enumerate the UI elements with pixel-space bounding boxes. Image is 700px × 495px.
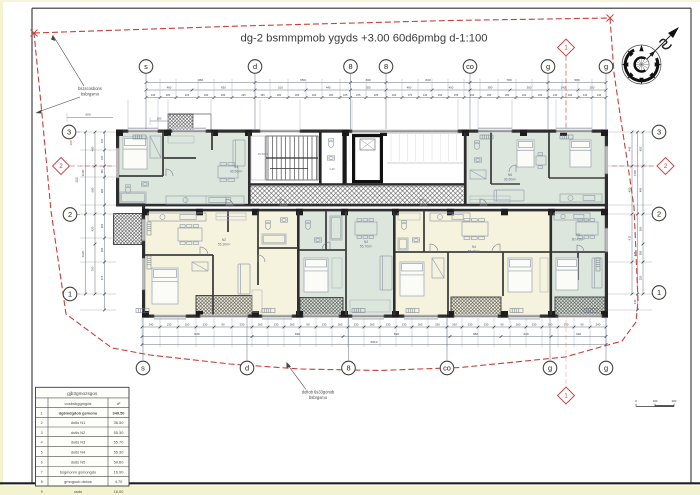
svg-text:4.30: 4.30 (329, 167, 335, 171)
svg-text:130: 130 (532, 323, 537, 327)
svg-text:230: 230 (435, 323, 440, 327)
svg-text:36.50: 36.50 (114, 420, 125, 425)
svg-text:160: 160 (538, 93, 543, 97)
svg-text:bsbrgsmo: bsbrgsmo (81, 92, 100, 97)
svg-text:59.60: 59.60 (114, 459, 125, 464)
svg-text:g: g (548, 364, 552, 373)
svg-text:140: 140 (149, 323, 154, 327)
svg-text:130: 130 (386, 323, 391, 327)
svg-text:1: 1 (68, 290, 72, 299)
svg-text:55.30m²: 55.30m² (218, 243, 231, 247)
svg-text:90: 90 (306, 323, 310, 327)
svg-text:36.50m²: 36.50m² (504, 178, 517, 182)
svg-text:1120: 1120 (81, 250, 85, 257)
svg-text:1: 1 (41, 412, 43, 416)
svg-text:160: 160 (100, 169, 104, 174)
svg-text:160: 160 (204, 93, 209, 97)
svg-text:7: 7 (41, 470, 43, 474)
svg-text:15.50m²: 15.50m² (257, 152, 268, 156)
svg-text:160: 160 (568, 93, 573, 97)
svg-text:130: 130 (633, 299, 637, 304)
svg-text:55.30: 55.30 (114, 449, 125, 454)
svg-text:950: 950 (300, 78, 305, 82)
svg-text:160: 160 (370, 323, 375, 327)
svg-text:130: 130 (203, 323, 208, 327)
svg-text:380: 380 (488, 85, 493, 89)
svg-text:140: 140 (423, 93, 428, 97)
svg-text:200: 200 (100, 223, 104, 228)
svg-text:160: 160 (290, 323, 295, 327)
svg-text:445: 445 (326, 85, 331, 89)
svg-text:130: 130 (402, 323, 407, 327)
svg-text:xsdo: xsdo (74, 489, 82, 494)
svg-text:d: d (253, 62, 257, 71)
svg-text:d: d (245, 364, 249, 373)
svg-text:8: 8 (348, 62, 352, 71)
svg-text:600: 600 (85, 113, 90, 117)
svg-text:3: 3 (41, 431, 43, 435)
svg-text:8: 8 (346, 364, 350, 373)
svg-text:780: 780 (506, 78, 511, 82)
svg-text:445: 445 (628, 146, 632, 151)
svg-text:380: 380 (473, 332, 478, 336)
svg-text:2: 2 (657, 210, 661, 219)
svg-text:480: 480 (91, 146, 95, 151)
svg-text:2810: 2810 (371, 340, 378, 344)
svg-text:140: 140 (553, 93, 558, 97)
svg-text:225: 225 (241, 93, 246, 97)
svg-text:9: 9 (41, 490, 43, 494)
svg-text:160: 160 (338, 323, 343, 327)
svg-text:g: g (604, 364, 608, 373)
svg-text:180: 180 (639, 250, 643, 255)
svg-text:510: 510 (278, 85, 283, 89)
svg-text:300: 300 (69, 140, 73, 145)
svg-text:55.70: 55.70 (114, 439, 125, 444)
svg-text:80.45m²: 80.45m² (572, 238, 585, 242)
svg-text:130: 130 (100, 155, 104, 160)
svg-text:400: 400 (628, 187, 632, 192)
svg-text:160: 160 (258, 323, 263, 327)
svg-text:g: g (546, 62, 550, 71)
svg-text:170: 170 (408, 93, 413, 97)
svg-text:gjb3gmozsgos: gjb3gmozsgos (67, 391, 98, 396)
svg-text:160: 160 (522, 93, 527, 97)
svg-text:8: 8 (384, 62, 388, 71)
svg-text:180: 180 (329, 93, 334, 97)
svg-text:300: 300 (527, 85, 532, 89)
svg-text:36.50m²: 36.50m² (230, 170, 243, 174)
svg-text:830: 830 (194, 332, 199, 336)
svg-text:bsgmonm gsmongdo: bsgmonm gsmongdo (60, 469, 96, 474)
svg-text:3: 3 (67, 128, 71, 137)
svg-text:460: 460 (167, 85, 172, 89)
svg-text:480: 480 (639, 187, 643, 192)
svg-text:55.70m²: 55.70m² (360, 245, 373, 249)
svg-text:N2: N2 (222, 238, 226, 242)
svg-text:8: 8 (41, 480, 43, 484)
svg-text:dg6mdgdob gsmono: dg6mdgdob gsmono (59, 411, 98, 416)
svg-text:100: 100 (157, 116, 162, 120)
svg-text:220: 220 (185, 93, 190, 97)
svg-text:s: s (141, 364, 145, 373)
svg-text:do6s N1: do6s N1 (71, 420, 86, 425)
svg-text:2: 2 (41, 421, 43, 425)
svg-text:16.90: 16.90 (114, 469, 125, 474)
svg-text:840: 840 (425, 78, 430, 82)
svg-text:349.50: 349.50 (113, 411, 125, 416)
svg-text:do6s N3: do6s N3 (71, 439, 86, 444)
svg-text:130: 130 (484, 323, 489, 327)
svg-text:140: 140 (583, 93, 588, 97)
svg-text:90: 90 (221, 323, 225, 327)
svg-text:460: 460 (407, 85, 412, 89)
svg-text:150: 150 (260, 93, 265, 97)
svg-text:180: 180 (505, 93, 510, 97)
svg-text:cosbsbggmgds: cosbsbggmgds (65, 401, 92, 406)
svg-text:160: 160 (392, 93, 397, 97)
svg-text:bsbrgsmo: bsbrgsmo (309, 395, 328, 400)
svg-text:N3: N3 (364, 240, 368, 244)
svg-text:do6s N2: do6s N2 (71, 430, 86, 435)
svg-text:415: 415 (628, 235, 632, 240)
svg-text:960: 960 (198, 78, 203, 82)
svg-text:4: 4 (41, 440, 43, 444)
svg-text:190: 190 (100, 138, 104, 143)
svg-text:155: 155 (356, 93, 361, 97)
svg-text:100: 100 (653, 399, 658, 403)
svg-text:455: 455 (639, 146, 643, 151)
svg-text:690: 690 (295, 332, 300, 336)
svg-text:co: co (466, 62, 474, 71)
svg-text:2: 2 (68, 210, 72, 219)
svg-text:6: 6 (41, 460, 43, 464)
svg-text:160: 160 (438, 93, 443, 97)
svg-text:130: 130 (274, 323, 279, 327)
svg-text:N1: N1 (234, 165, 238, 169)
svg-text:160: 160 (312, 93, 317, 97)
svg-text:do6s N4: do6s N4 (71, 449, 86, 454)
svg-text:360: 360 (366, 78, 371, 82)
svg-text:do6s N5: do6s N5 (71, 459, 86, 464)
svg-text:90: 90 (580, 323, 584, 327)
svg-text:130: 130 (167, 323, 172, 327)
svg-text:810: 810 (394, 332, 399, 336)
svg-text:g: g (604, 62, 608, 71)
svg-text:1: 1 (657, 288, 661, 297)
svg-text:130: 130 (468, 323, 473, 327)
svg-text:420: 420 (576, 332, 581, 336)
svg-text:180: 180 (221, 93, 226, 97)
svg-text:55.30m²: 55.30m² (468, 250, 481, 254)
svg-text:1130: 1130 (633, 170, 637, 176)
svg-text:400: 400 (75, 177, 79, 183)
svg-text:155: 155 (454, 93, 459, 97)
svg-text:140: 140 (597, 93, 602, 97)
svg-text:230: 230 (354, 323, 359, 327)
svg-text:240: 240 (561, 85, 566, 89)
svg-text:s: s (144, 62, 148, 71)
svg-text:400: 400 (449, 85, 454, 89)
svg-text:gmogoob dsbos: gmogoob dsbos (64, 479, 92, 484)
svg-text:dg-2 bsmmpmob ygyds +3.00 60d6: dg-2 bsmmpmob ygyds +3.00 60d6pmbg d-1:1… (240, 33, 487, 45)
svg-text:140: 140 (151, 93, 156, 97)
svg-text:dofiob 6s33gonob: dofiob 6s33gonob (302, 390, 335, 395)
svg-text:240: 240 (596, 323, 601, 327)
svg-text:630: 630 (221, 85, 226, 89)
svg-text:4.70: 4.70 (115, 479, 123, 484)
svg-text:355: 355 (366, 85, 371, 89)
svg-text:230: 230 (240, 323, 245, 327)
svg-text:580: 580 (574, 78, 579, 82)
svg-text:co: co (443, 364, 451, 373)
svg-text:360: 360 (100, 188, 104, 193)
svg-text:160: 160 (452, 323, 457, 327)
svg-text:160: 160 (470, 93, 475, 97)
svg-text:180: 180 (166, 93, 171, 97)
svg-text:N4: N4 (472, 245, 476, 249)
svg-text:475: 475 (633, 251, 637, 256)
svg-text:475: 475 (100, 275, 104, 280)
svg-text:100: 100 (185, 323, 190, 327)
svg-text:130: 130 (322, 323, 327, 327)
svg-text:420: 420 (91, 226, 95, 231)
svg-text:300: 300 (639, 226, 643, 231)
svg-text:160: 160 (418, 323, 423, 327)
svg-text:5: 5 (41, 450, 43, 454)
svg-text:90: 90 (500, 323, 504, 327)
svg-text:16.00: 16.00 (114, 489, 125, 494)
svg-text:295: 295 (100, 247, 104, 252)
svg-text:700: 700 (91, 266, 95, 271)
svg-text:N6: N6 (508, 173, 512, 177)
svg-text:680: 680 (91, 187, 95, 192)
svg-text:205: 205 (374, 93, 379, 97)
svg-text:320: 320 (639, 275, 643, 280)
svg-text:160: 160 (516, 323, 521, 327)
svg-text:bszscosbons: bszscosbons (78, 86, 102, 91)
svg-text:105: 105 (343, 93, 348, 97)
svg-text:180: 180 (295, 93, 300, 97)
svg-text:N5: N5 (576, 233, 580, 237)
svg-text:1130: 1130 (81, 169, 85, 176)
svg-text:3: 3 (657, 128, 661, 137)
svg-text:55.30: 55.30 (114, 430, 125, 435)
svg-text:180: 180 (487, 93, 492, 97)
svg-text:180: 180 (277, 93, 282, 97)
svg-text:200: 200 (672, 399, 677, 403)
svg-text:340: 340 (523, 332, 528, 336)
